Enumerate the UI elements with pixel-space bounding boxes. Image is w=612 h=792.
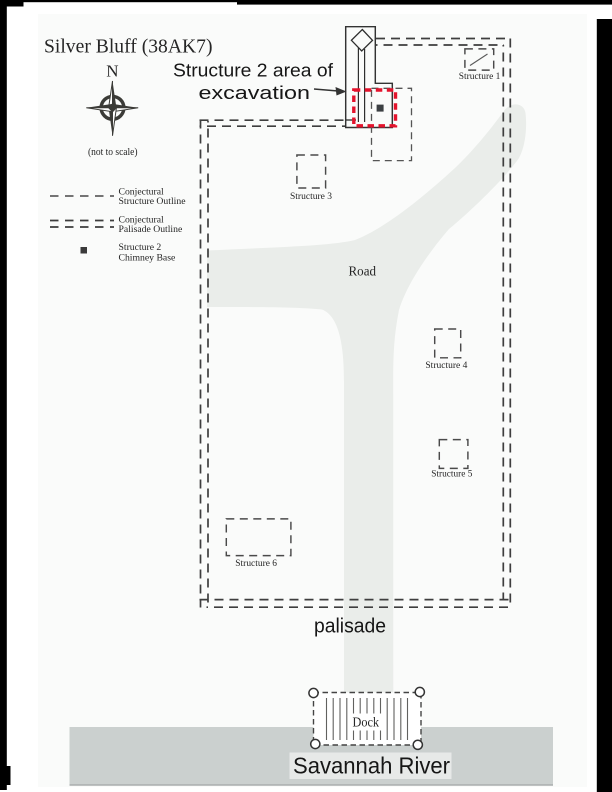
svg-text:palisade: palisade [314, 616, 386, 638]
svg-text:N: N [106, 61, 118, 80]
svg-text:Structure 5: Structure 5 [431, 469, 472, 480]
svg-text:Dock: Dock [353, 715, 380, 730]
svg-text:Structure 4: Structure 4 [425, 360, 467, 371]
svg-text:excavation: excavation [199, 83, 311, 103]
svg-text:Road: Road [349, 265, 377, 280]
svg-text:Structure 2 area of: Structure 2 area of [173, 61, 334, 81]
svg-text:Structure 1: Structure 1 [459, 71, 501, 82]
svg-text:(not to scale): (not to scale) [88, 147, 138, 158]
svg-text:Silver Bluff (38AK7): Silver Bluff (38AK7) [44, 36, 213, 58]
svg-text:Structure 6: Structure 6 [235, 558, 277, 569]
svg-text:Structure 3: Structure 3 [290, 191, 332, 202]
svg-text:Savannah River: Savannah River [293, 753, 450, 779]
